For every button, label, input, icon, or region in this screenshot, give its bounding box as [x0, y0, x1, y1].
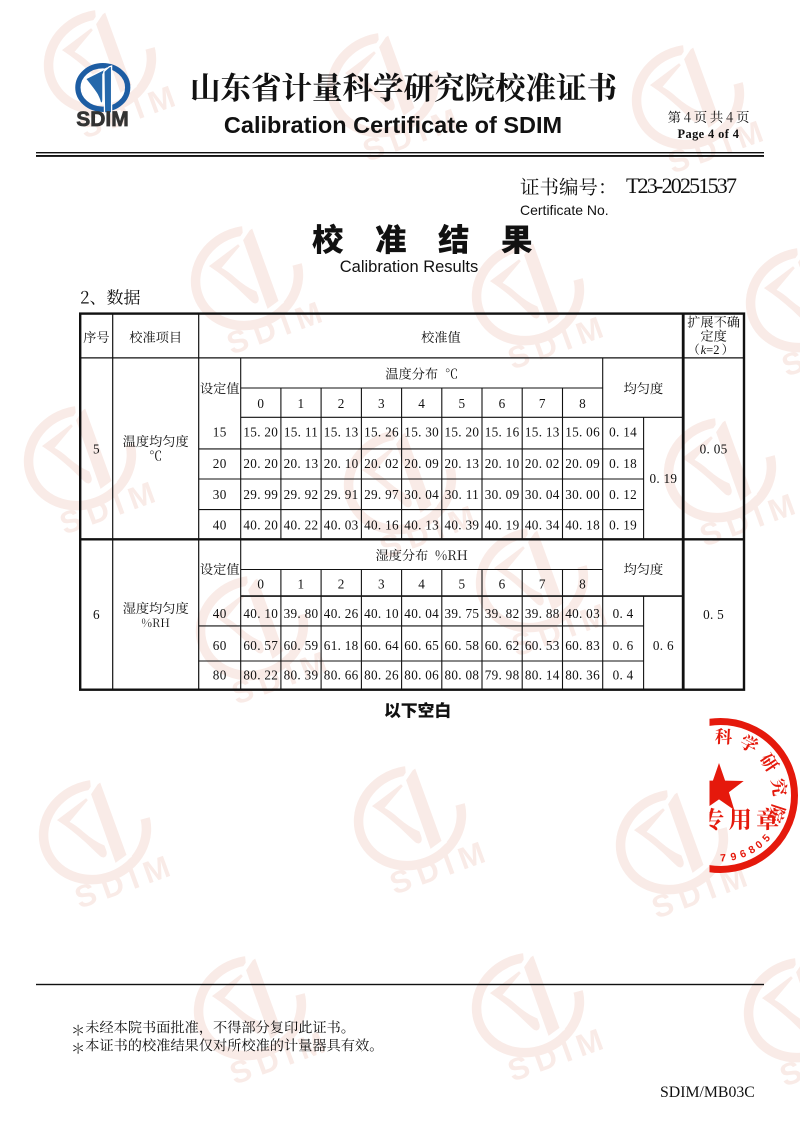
- svg-text:29. 97: 29. 97: [364, 487, 399, 502]
- svg-text:30. 00: 30. 00: [565, 487, 600, 502]
- svg-text:0: 0: [257, 576, 264, 591]
- svg-text:30. 09: 30. 09: [485, 487, 520, 502]
- svg-text:40. 19: 40. 19: [485, 518, 520, 533]
- svg-text:0. 4: 0. 4: [613, 668, 634, 683]
- svg-text:0. 18: 0. 18: [609, 456, 637, 471]
- svg-text:Certificate No.: Certificate No.: [520, 202, 609, 218]
- svg-text:40: 40: [213, 606, 227, 621]
- svg-text:7: 7: [539, 576, 546, 591]
- svg-text:15. 13: 15. 13: [525, 425, 560, 440]
- svg-text:0. 6: 0. 6: [613, 638, 634, 653]
- svg-text:1: 1: [298, 396, 305, 411]
- svg-text:40. 18: 40. 18: [565, 518, 600, 533]
- svg-text:80. 06: 80. 06: [404, 668, 439, 683]
- svg-text:5: 5: [458, 396, 465, 411]
- svg-text:40. 13: 40. 13: [404, 518, 439, 533]
- svg-text:30: 30: [213, 487, 227, 502]
- svg-text:40. 26: 40. 26: [324, 606, 359, 621]
- svg-text:2: 2: [338, 576, 345, 591]
- svg-text:SDIM/MB03C: SDIM/MB03C: [660, 1084, 755, 1101]
- svg-text:15: 15: [213, 425, 227, 440]
- svg-text:0. 6: 0. 6: [653, 638, 674, 653]
- svg-text:1: 1: [298, 576, 305, 591]
- svg-text:60. 65: 60. 65: [404, 638, 439, 653]
- svg-text:20. 02: 20. 02: [364, 456, 399, 471]
- svg-text:SDIM: SDIM: [76, 108, 129, 131]
- svg-text:k=2: k=2: [701, 343, 720, 357]
- svg-text:30. 04: 30. 04: [404, 487, 439, 502]
- svg-text:7: 7: [720, 852, 726, 864]
- svg-text:6: 6: [499, 396, 506, 411]
- svg-text:39. 80: 39. 80: [284, 606, 319, 621]
- svg-text:40. 20: 40. 20: [243, 518, 278, 533]
- svg-text:20. 09: 20. 09: [404, 456, 439, 471]
- svg-text:79. 98: 79. 98: [485, 668, 520, 683]
- svg-text:20. 13: 20. 13: [445, 456, 480, 471]
- svg-text:20. 20: 20. 20: [243, 456, 278, 471]
- svg-text:15. 20: 15. 20: [445, 425, 480, 440]
- svg-text:60. 59: 60. 59: [284, 638, 319, 653]
- svg-text:Page 4 of 4: Page 4 of 4: [678, 127, 740, 141]
- svg-text:40. 04: 40. 04: [404, 606, 439, 621]
- svg-text:80. 39: 80. 39: [284, 668, 319, 683]
- svg-text:20. 09: 20. 09: [565, 456, 600, 471]
- svg-text:Calibration Certificate of SDI: Calibration Certificate of SDIM: [224, 112, 562, 138]
- svg-text:15. 20: 15. 20: [243, 425, 278, 440]
- svg-text:80. 14: 80. 14: [525, 668, 560, 683]
- svg-text:39. 88: 39. 88: [525, 606, 560, 621]
- svg-text:0. 12: 0. 12: [609, 487, 637, 502]
- svg-text:0. 5: 0. 5: [703, 607, 724, 622]
- svg-text:15. 26: 15. 26: [364, 425, 399, 440]
- svg-text:60. 58: 60. 58: [445, 638, 480, 653]
- svg-text:15. 06: 15. 06: [565, 425, 600, 440]
- svg-text:40. 22: 40. 22: [284, 518, 319, 533]
- svg-text:15. 16: 15. 16: [485, 425, 520, 440]
- svg-text:80: 80: [213, 668, 227, 683]
- svg-text:40. 34: 40. 34: [525, 518, 560, 533]
- svg-text:40: 40: [213, 518, 227, 533]
- svg-text:60. 64: 60. 64: [364, 638, 399, 653]
- svg-text:60. 57: 60. 57: [243, 638, 278, 653]
- svg-text:T23-20251537: T23-20251537: [626, 173, 737, 198]
- svg-text:39. 75: 39. 75: [445, 606, 480, 621]
- svg-text:39. 82: 39. 82: [485, 606, 520, 621]
- svg-text:80. 66: 80. 66: [324, 668, 359, 683]
- svg-text:15. 11: 15. 11: [284, 425, 318, 440]
- svg-text:80. 08: 80. 08: [445, 668, 480, 683]
- svg-text:60. 53: 60. 53: [525, 638, 560, 653]
- svg-text:4: 4: [418, 396, 425, 411]
- svg-text:5: 5: [93, 441, 100, 456]
- svg-text:0. 19: 0. 19: [609, 518, 637, 533]
- svg-text:20. 02: 20. 02: [525, 456, 560, 471]
- svg-text:60: 60: [213, 638, 227, 653]
- svg-text:3: 3: [378, 396, 385, 411]
- svg-text:20. 10: 20. 10: [324, 456, 359, 471]
- svg-text:80. 22: 80. 22: [243, 668, 278, 683]
- svg-text:80. 36: 80. 36: [565, 668, 600, 683]
- svg-text:7: 7: [539, 396, 546, 411]
- svg-text:60. 83: 60. 83: [565, 638, 600, 653]
- svg-text:0: 0: [257, 396, 264, 411]
- svg-text:0. 19: 0. 19: [649, 471, 677, 486]
- svg-text:80. 26: 80. 26: [364, 668, 399, 683]
- svg-text:2: 2: [338, 396, 345, 411]
- svg-text:6: 6: [499, 576, 506, 591]
- svg-text:8: 8: [579, 396, 586, 411]
- svg-text:20: 20: [213, 456, 227, 471]
- svg-text:40. 16: 40. 16: [364, 518, 399, 533]
- svg-text:30. 11: 30. 11: [445, 487, 479, 502]
- svg-text:60. 62: 60. 62: [485, 638, 520, 653]
- svg-text:40. 10: 40. 10: [243, 606, 278, 621]
- svg-text:0. 4: 0. 4: [613, 606, 634, 621]
- svg-text:5: 5: [458, 576, 465, 591]
- svg-text:0. 14: 0. 14: [609, 425, 637, 440]
- svg-text:15. 13: 15. 13: [324, 425, 359, 440]
- svg-text:40. 03: 40. 03: [565, 606, 600, 621]
- svg-text:6: 6: [93, 607, 100, 622]
- svg-text:20. 10: 20. 10: [485, 456, 520, 471]
- svg-text:0. 05: 0. 05: [700, 441, 728, 456]
- svg-text:40. 39: 40. 39: [445, 518, 480, 533]
- svg-text:40. 03: 40. 03: [324, 518, 359, 533]
- svg-text:4: 4: [418, 576, 425, 591]
- svg-text:8: 8: [579, 576, 586, 591]
- svg-text:30. 04: 30. 04: [525, 487, 560, 502]
- svg-text:61. 18: 61. 18: [324, 638, 359, 653]
- svg-text:3: 3: [378, 576, 385, 591]
- svg-text:20. 13: 20. 13: [284, 456, 319, 471]
- svg-text:29. 99: 29. 99: [243, 487, 278, 502]
- svg-text:40. 10: 40. 10: [364, 606, 399, 621]
- svg-text:15. 30: 15. 30: [404, 425, 439, 440]
- svg-text:29. 92: 29. 92: [284, 487, 319, 502]
- svg-text:29. 91: 29. 91: [324, 487, 359, 502]
- svg-text:Calibration Results: Calibration Results: [340, 258, 478, 276]
